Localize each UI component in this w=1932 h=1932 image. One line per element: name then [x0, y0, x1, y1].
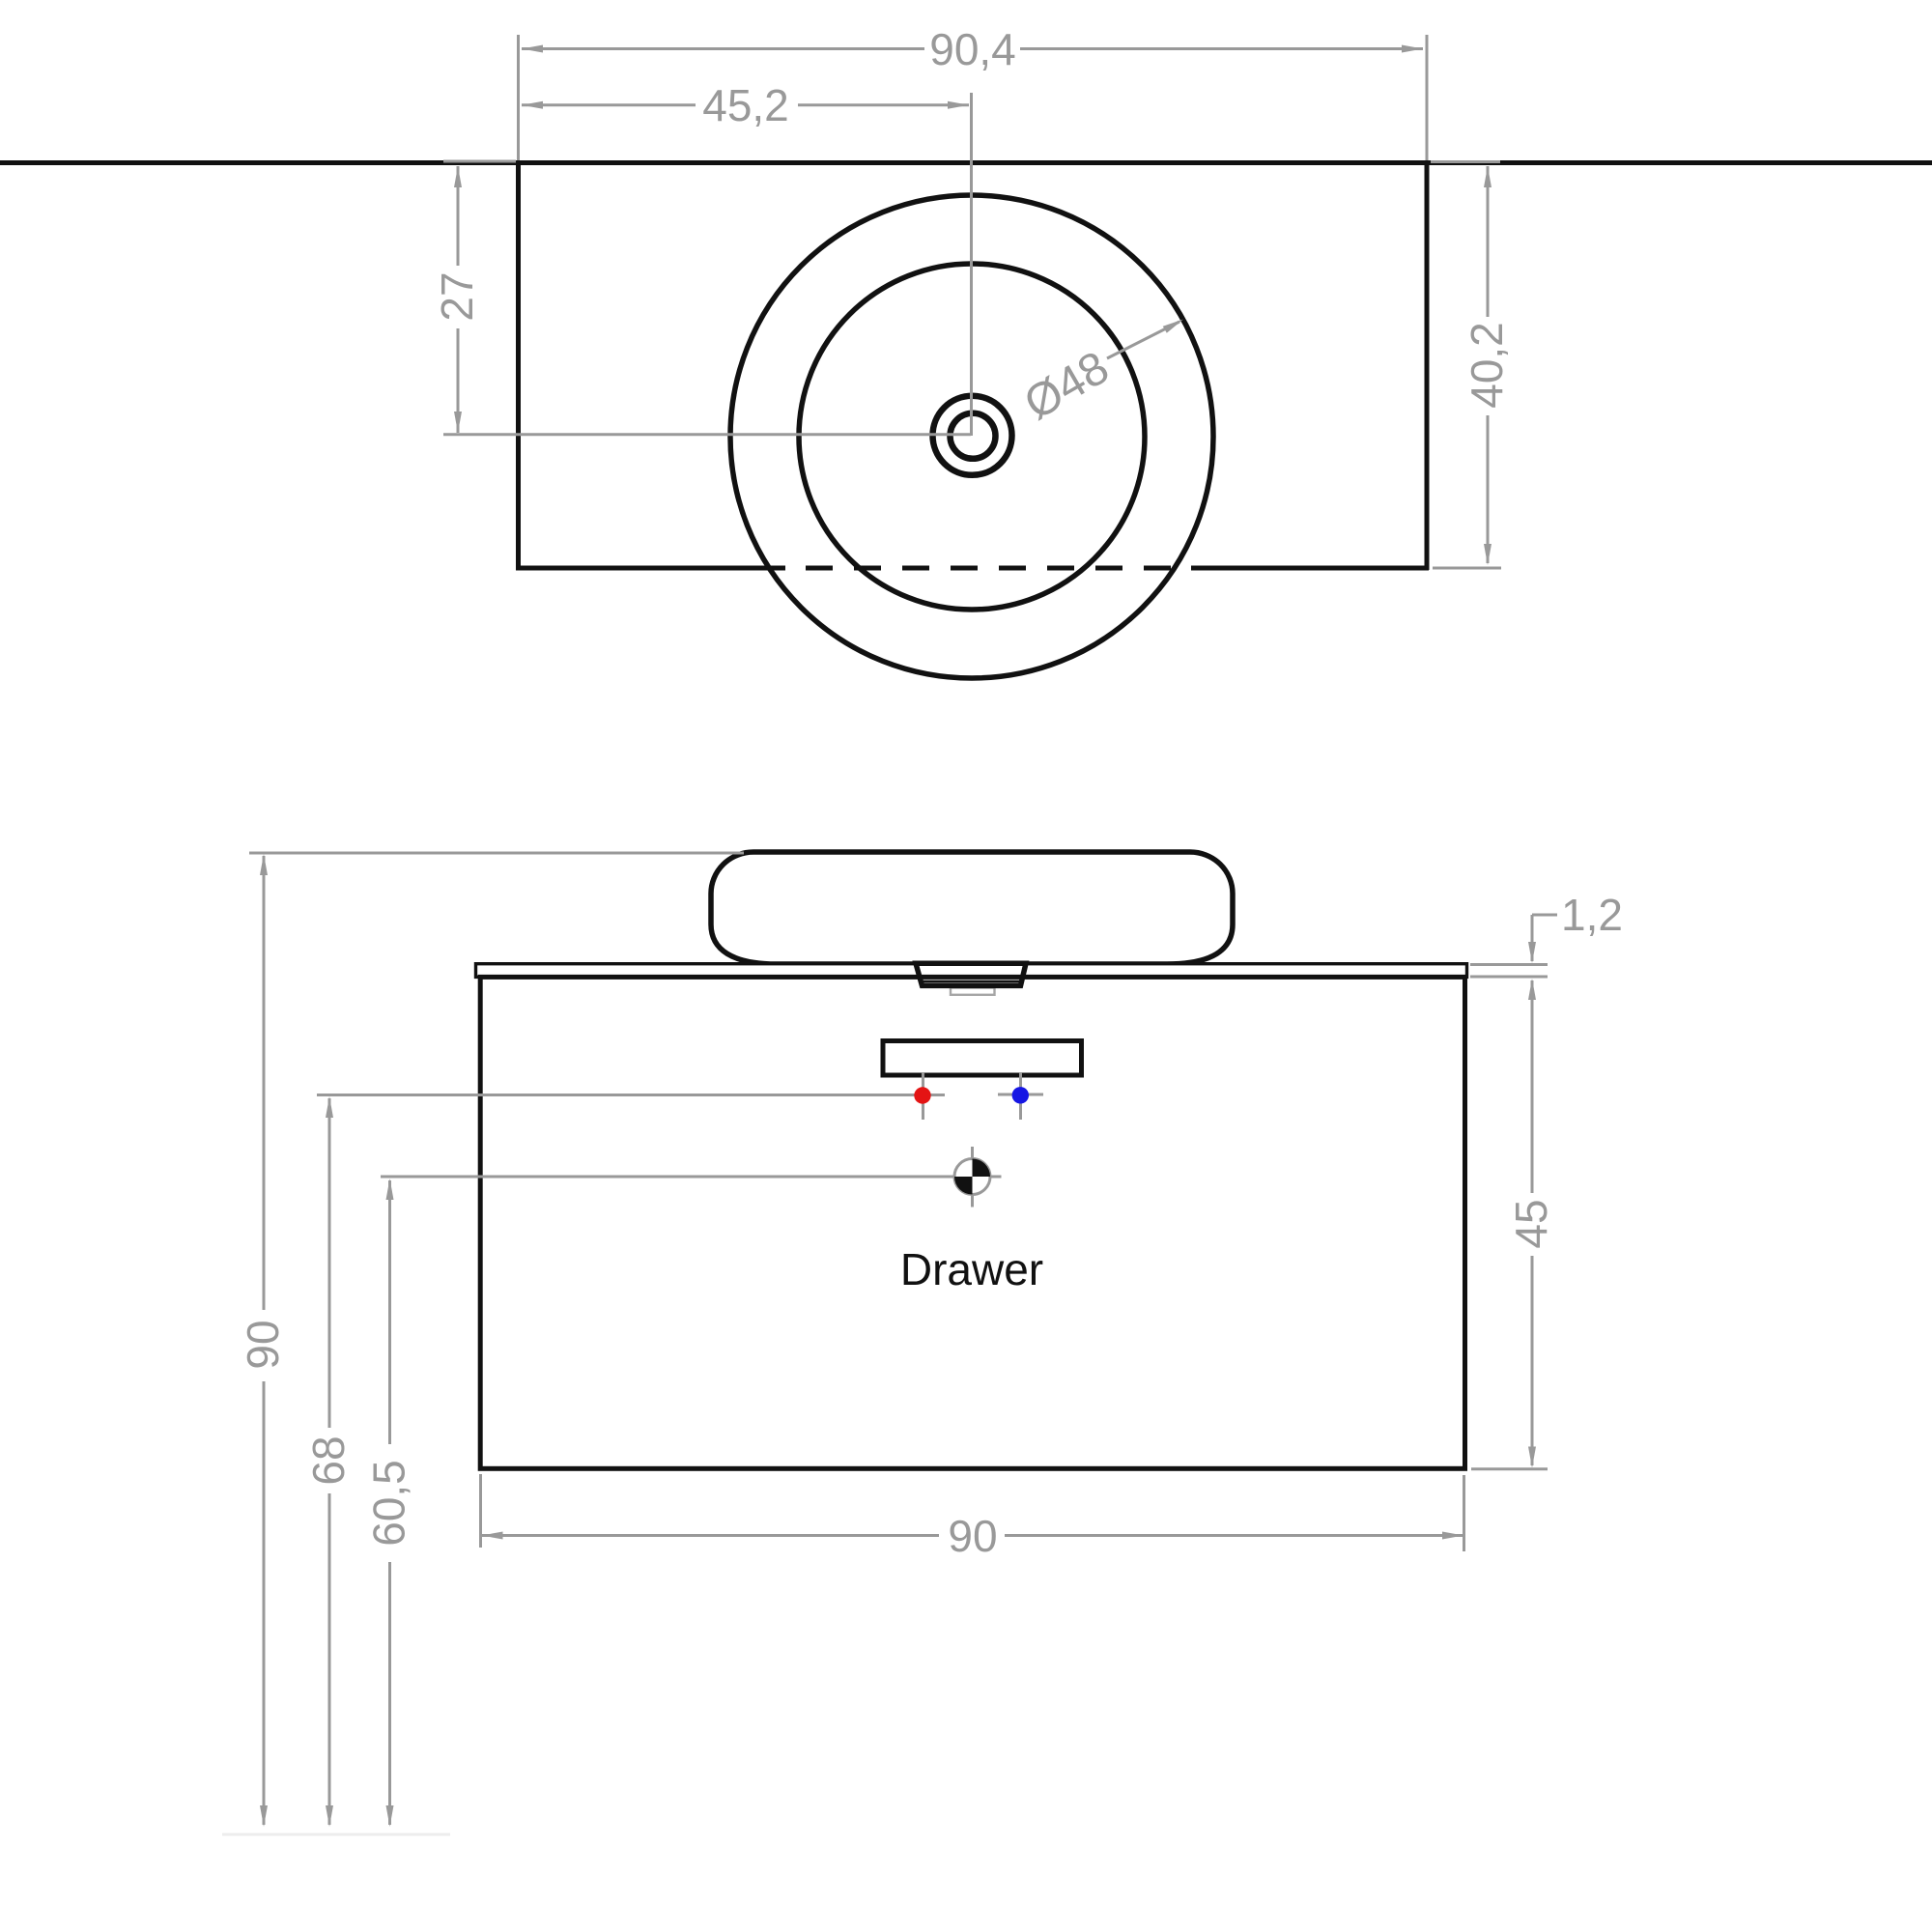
svg-text:68: 68 [303, 1435, 354, 1485]
svg-text:60,5: 60,5 [364, 1460, 414, 1547]
svg-text:90,4: 90,4 [929, 24, 1016, 74]
svg-text:40,2: 40,2 [1462, 322, 1512, 409]
svg-text:Drawer: Drawer [900, 1244, 1043, 1294]
svg-text:90: 90 [948, 1511, 997, 1561]
svg-text:45: 45 [1506, 1199, 1556, 1248]
svg-text:90: 90 [238, 1320, 288, 1369]
svg-text:1,2: 1,2 [1561, 890, 1623, 940]
svg-text:45,2: 45,2 [702, 80, 789, 130]
svg-text:27: 27 [432, 271, 482, 321]
